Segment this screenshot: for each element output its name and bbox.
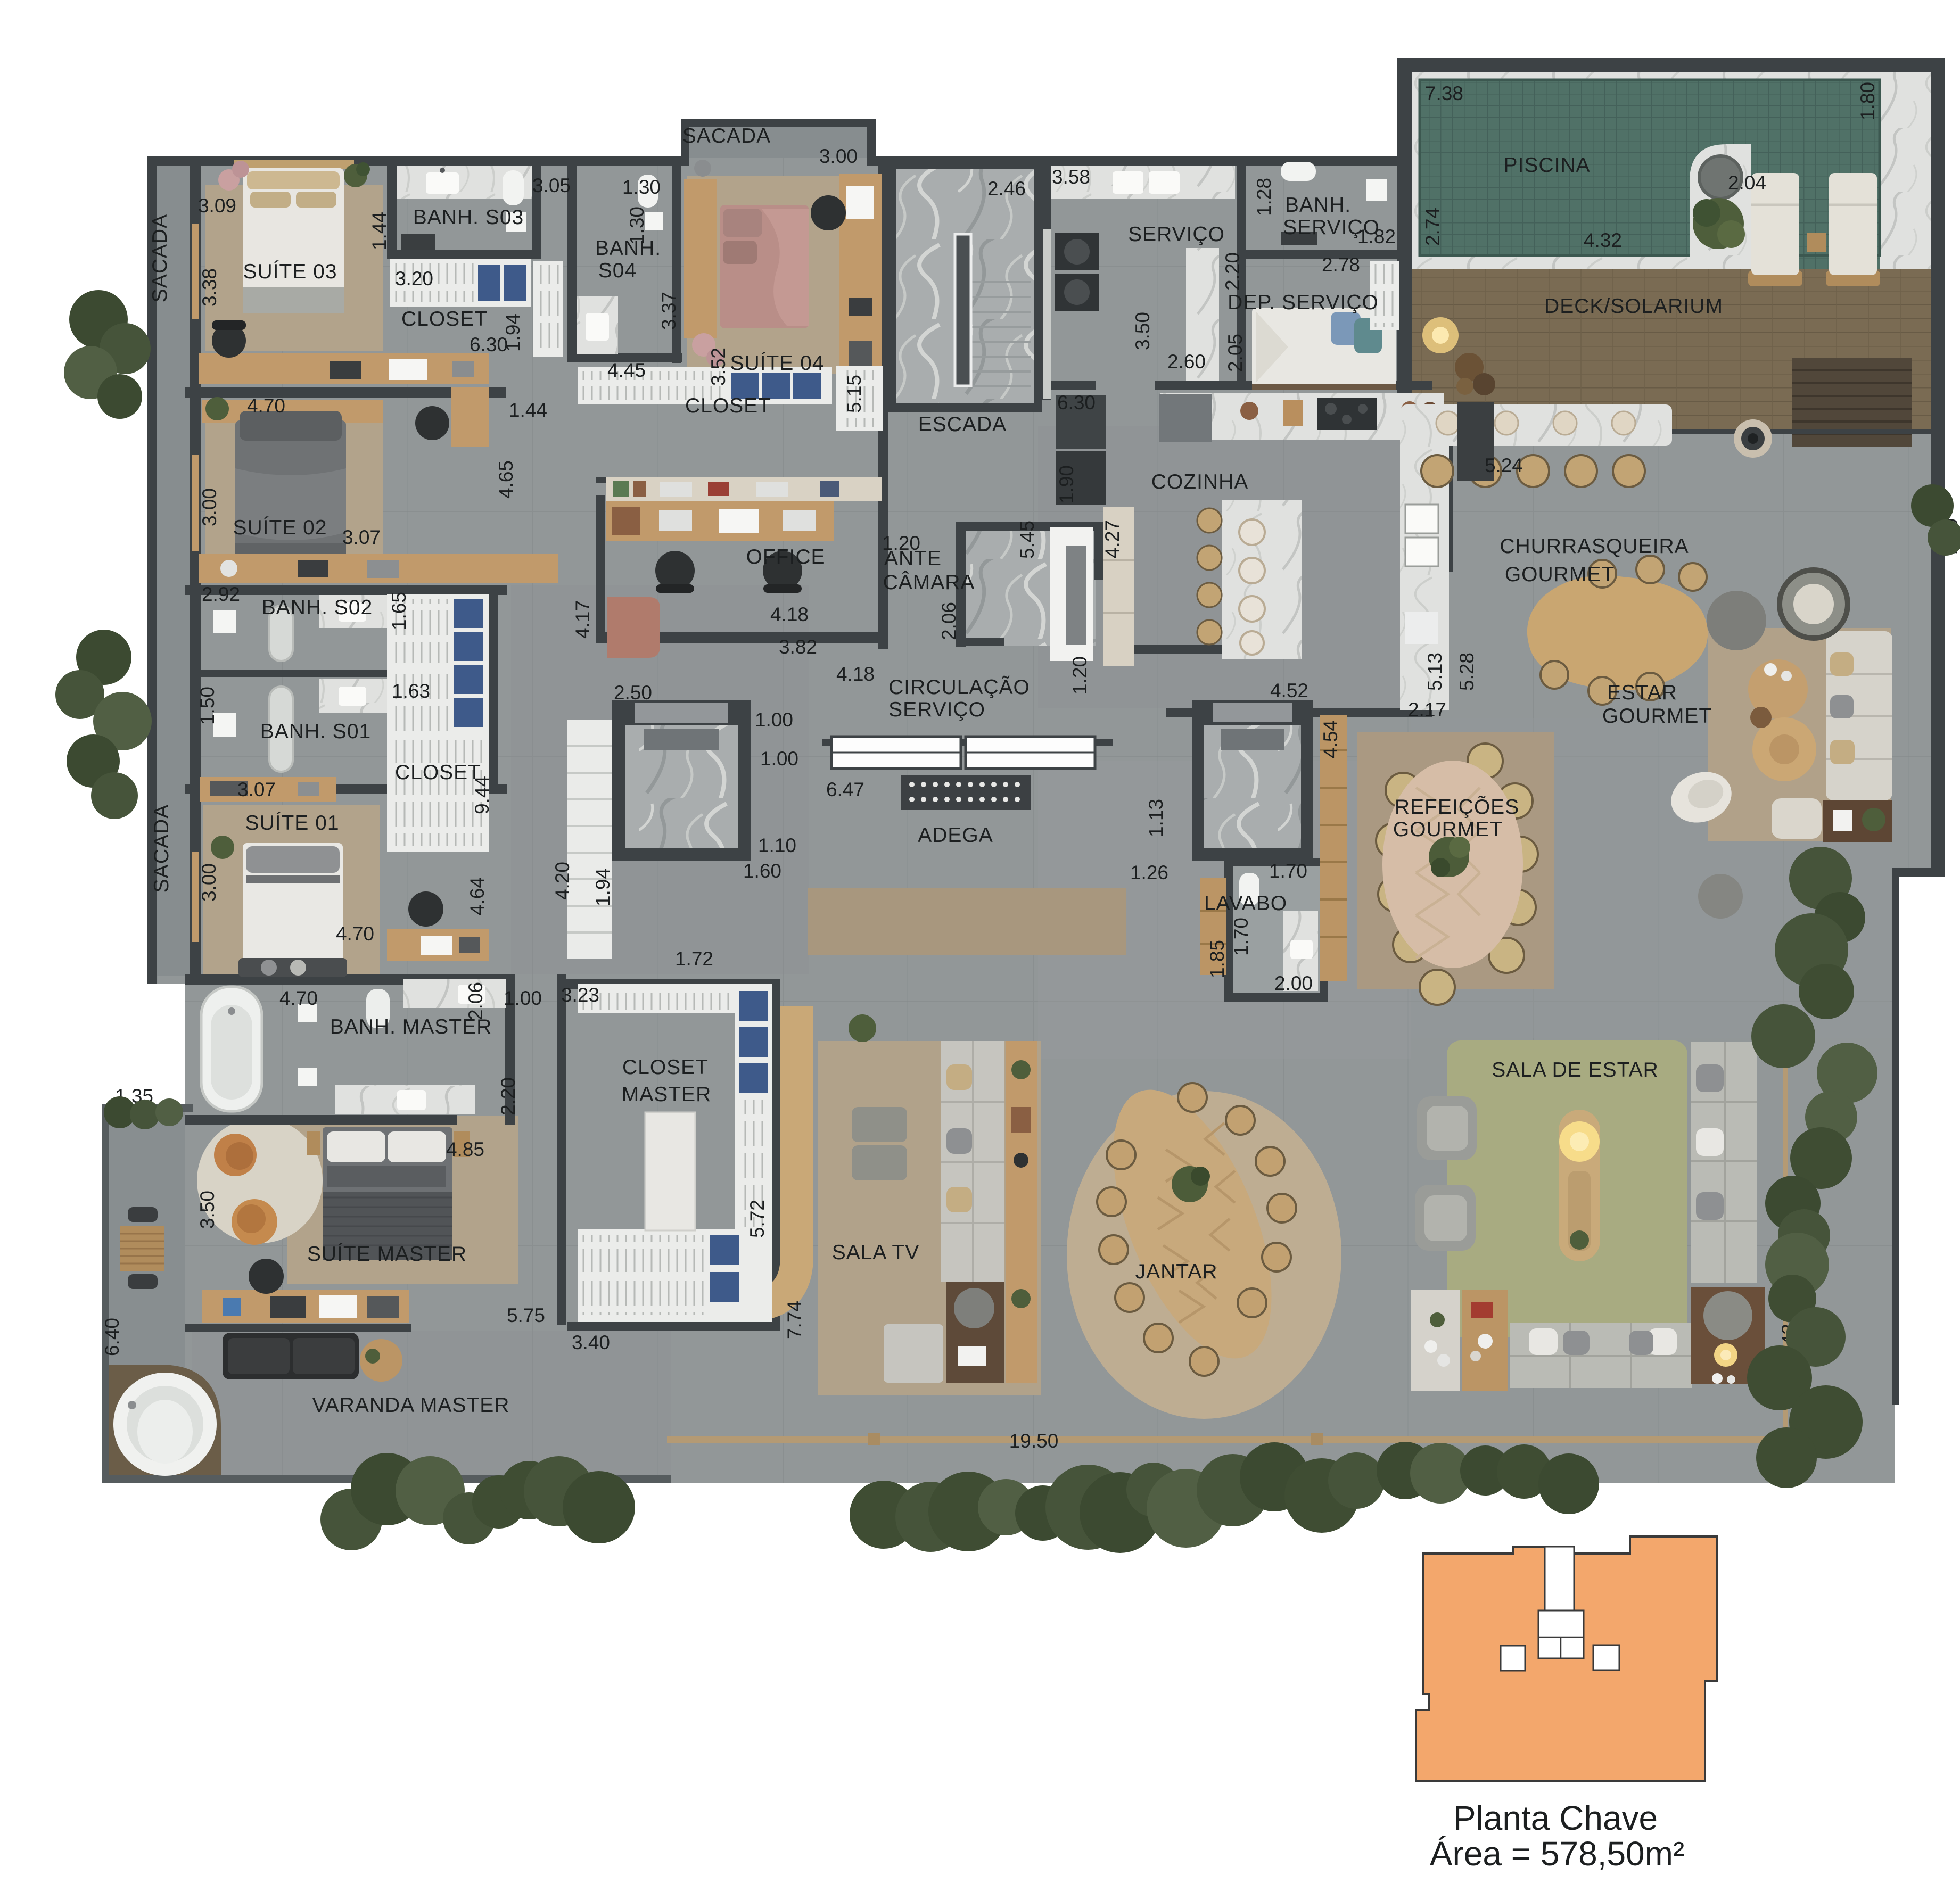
svg-text:BANH.: BANH. bbox=[1285, 194, 1351, 217]
svg-text:4.64: 4.64 bbox=[466, 877, 488, 915]
svg-text:JANTAR: JANTAR bbox=[1135, 1260, 1218, 1283]
svg-text:1.72: 1.72 bbox=[675, 948, 713, 970]
svg-text:COZINHA: COZINHA bbox=[1151, 470, 1249, 493]
svg-text:4.65: 4.65 bbox=[495, 460, 517, 499]
svg-text:4.45: 4.45 bbox=[607, 359, 646, 381]
svg-text:1.44: 1.44 bbox=[368, 212, 390, 250]
svg-text:4.32: 4.32 bbox=[1584, 229, 1622, 251]
svg-text:2.20: 2.20 bbox=[1222, 252, 1243, 291]
svg-text:2.06: 2.06 bbox=[938, 602, 960, 640]
svg-text:3.07: 3.07 bbox=[342, 526, 381, 548]
svg-text:1.70: 1.70 bbox=[1269, 860, 1307, 882]
svg-text:5.75: 5.75 bbox=[507, 1304, 545, 1326]
svg-text:GOURMET: GOURMET bbox=[1505, 563, 1615, 586]
svg-text:2.06: 2.06 bbox=[465, 982, 487, 1020]
svg-text:BANH. S01: BANH. S01 bbox=[260, 720, 371, 743]
svg-text:4.70: 4.70 bbox=[279, 987, 318, 1009]
svg-text:3.82: 3.82 bbox=[779, 636, 817, 658]
svg-text:LAVABO: LAVABO bbox=[1204, 892, 1287, 915]
svg-text:SUÍTE MASTER: SUÍTE MASTER bbox=[307, 1243, 467, 1266]
svg-text:1.65: 1.65 bbox=[388, 592, 410, 630]
svg-text:DEP. SERVIÇO: DEP. SERVIÇO bbox=[1228, 291, 1379, 314]
svg-text:2.05: 2.05 bbox=[1224, 334, 1246, 372]
svg-text:1.94: 1.94 bbox=[592, 868, 614, 906]
svg-text:3.38: 3.38 bbox=[199, 268, 220, 307]
svg-text:2.60: 2.60 bbox=[1167, 351, 1206, 373]
svg-text:4.52: 4.52 bbox=[1270, 680, 1308, 701]
svg-text:5.13: 5.13 bbox=[1424, 652, 1446, 691]
svg-text:1.30: 1.30 bbox=[626, 206, 648, 245]
svg-text:2.20: 2.20 bbox=[497, 1077, 519, 1116]
svg-text:SUÍTE 01: SUÍTE 01 bbox=[245, 812, 339, 835]
svg-text:SUÍTE 04: SUÍTE 04 bbox=[730, 352, 824, 375]
svg-text:CIRCULAÇÃO: CIRCULAÇÃO bbox=[888, 676, 1030, 699]
svg-text:CLOSET: CLOSET bbox=[395, 761, 481, 784]
svg-text:Área = 578,50m²: Área = 578,50m² bbox=[1430, 1835, 1685, 1873]
svg-text:4.18: 4.18 bbox=[836, 663, 875, 685]
svg-text:1.26: 1.26 bbox=[1130, 862, 1168, 883]
svg-text:VARANDA MASTER: VARANDA MASTER bbox=[312, 1394, 510, 1417]
svg-text:1.28: 1.28 bbox=[1253, 178, 1275, 216]
svg-text:1.60: 1.60 bbox=[743, 860, 781, 882]
svg-text:1.30: 1.30 bbox=[622, 176, 661, 198]
svg-text:4.20: 4.20 bbox=[551, 862, 573, 900]
svg-text:3.23: 3.23 bbox=[561, 984, 599, 1006]
svg-text:ESTAR: ESTAR bbox=[1607, 681, 1677, 704]
svg-text:1.00: 1.00 bbox=[760, 748, 798, 770]
svg-text:SALA DE ESTAR: SALA DE ESTAR bbox=[1492, 1059, 1659, 1081]
svg-text:3.00: 3.00 bbox=[199, 488, 220, 526]
svg-text:3.20: 3.20 bbox=[395, 268, 433, 290]
svg-text:1.20: 1.20 bbox=[882, 532, 920, 554]
svg-text:6.30: 6.30 bbox=[1057, 392, 1096, 414]
svg-text:3.05: 3.05 bbox=[532, 175, 571, 196]
svg-text:3.37: 3.37 bbox=[658, 292, 680, 330]
svg-text:Planta Chave: Planta Chave bbox=[1453, 1799, 1658, 1837]
svg-text:DECK/SOLARIUM: DECK/SOLARIUM bbox=[1544, 295, 1723, 318]
svg-text:ADEGA: ADEGA bbox=[918, 824, 993, 847]
svg-text:SERVIÇO: SERVIÇO bbox=[1128, 223, 1225, 246]
svg-text:4.70: 4.70 bbox=[336, 923, 374, 945]
svg-text:1.70: 1.70 bbox=[1230, 918, 1252, 956]
svg-text:3.00: 3.00 bbox=[198, 863, 220, 902]
svg-text:3.00: 3.00 bbox=[819, 145, 858, 167]
svg-text:1.20: 1.20 bbox=[1069, 656, 1091, 695]
svg-text:5.28: 5.28 bbox=[1456, 652, 1478, 691]
svg-text:4.85: 4.85 bbox=[446, 1138, 484, 1160]
svg-text:4.18: 4.18 bbox=[770, 604, 809, 625]
svg-text:1.85: 1.85 bbox=[1206, 940, 1228, 978]
svg-text:2.74: 2.74 bbox=[1422, 208, 1444, 246]
svg-text:6.47: 6.47 bbox=[826, 779, 864, 800]
svg-text:SACADA: SACADA bbox=[682, 125, 771, 147]
svg-text:GOURMET: GOURMET bbox=[1393, 818, 1503, 841]
svg-text:6.40: 6.40 bbox=[101, 1318, 123, 1356]
svg-text:SACADA: SACADA bbox=[149, 214, 171, 302]
svg-text:1.90: 1.90 bbox=[1056, 465, 1077, 503]
svg-text:7.74: 7.74 bbox=[784, 1301, 805, 1339]
svg-text:CLOSET: CLOSET bbox=[622, 1056, 709, 1079]
svg-text:4.70: 4.70 bbox=[247, 395, 285, 417]
svg-text:3.40: 3.40 bbox=[572, 1332, 610, 1353]
svg-text:1.13: 1.13 bbox=[1145, 799, 1167, 837]
svg-text:2.92: 2.92 bbox=[202, 583, 240, 605]
svg-text:19.50: 19.50 bbox=[1009, 1430, 1059, 1452]
svg-text:PISCINA: PISCINA bbox=[1503, 154, 1590, 177]
svg-text:MASTER: MASTER bbox=[622, 1083, 712, 1106]
svg-text:1.00: 1.00 bbox=[755, 709, 793, 731]
svg-text:SALA TV: SALA TV bbox=[832, 1241, 920, 1264]
svg-text:GOURMET: GOURMET bbox=[1602, 705, 1712, 728]
svg-text:4.54: 4.54 bbox=[1320, 720, 1341, 758]
svg-text:9.44: 9.44 bbox=[471, 776, 493, 814]
svg-text:7.38: 7.38 bbox=[1425, 82, 1463, 104]
svg-text:SUÍTE 02: SUÍTE 02 bbox=[233, 516, 327, 539]
svg-text:3.50: 3.50 bbox=[1132, 312, 1154, 350]
svg-text:CLOSET: CLOSET bbox=[685, 394, 771, 417]
svg-text:1.80: 1.80 bbox=[1857, 82, 1879, 120]
svg-text:3.50: 3.50 bbox=[196, 1191, 218, 1229]
svg-text:6.30: 6.30 bbox=[470, 334, 508, 356]
svg-text:1.10: 1.10 bbox=[758, 835, 796, 856]
svg-text:CLOSET: CLOSET bbox=[401, 308, 488, 331]
svg-text:4.27: 4.27 bbox=[1101, 520, 1123, 558]
svg-text:3.52: 3.52 bbox=[707, 348, 729, 386]
svg-text:2.50: 2.50 bbox=[614, 682, 652, 704]
svg-text:1.82: 1.82 bbox=[1357, 226, 1396, 247]
svg-text:BANH. S03: BANH. S03 bbox=[413, 206, 524, 229]
svg-text:1.00: 1.00 bbox=[504, 987, 542, 1009]
svg-text:1.44: 1.44 bbox=[509, 399, 547, 421]
svg-text:2.17: 2.17 bbox=[1408, 699, 1446, 721]
svg-text:3.58: 3.58 bbox=[1052, 166, 1090, 188]
svg-text:2.04: 2.04 bbox=[1728, 172, 1766, 194]
svg-text:3.09: 3.09 bbox=[198, 195, 236, 217]
svg-text:5.15: 5.15 bbox=[843, 375, 865, 413]
svg-text:OFFICE: OFFICE bbox=[746, 546, 826, 568]
svg-text:SACADA: SACADA bbox=[150, 804, 173, 893]
svg-text:4.17: 4.17 bbox=[572, 600, 594, 639]
svg-text:CHURRASQUEIRA: CHURRASQUEIRA bbox=[1500, 535, 1689, 558]
svg-text:CÂMARA: CÂMARA bbox=[883, 571, 975, 594]
svg-text:1.50: 1.50 bbox=[196, 687, 218, 725]
svg-text:2.00: 2.00 bbox=[1274, 972, 1313, 994]
svg-text:S04: S04 bbox=[598, 259, 637, 282]
svg-text:SERVIÇO: SERVIÇO bbox=[888, 698, 985, 721]
svg-text:REFEIÇÕES: REFEIÇÕES bbox=[1395, 795, 1519, 819]
svg-text:5.24: 5.24 bbox=[1485, 455, 1523, 476]
svg-text:SUÍTE 03: SUÍTE 03 bbox=[243, 260, 337, 283]
svg-text:2.78: 2.78 bbox=[1322, 254, 1360, 276]
svg-text:BANH. S02: BANH. S02 bbox=[262, 596, 373, 619]
svg-text:1.63: 1.63 bbox=[392, 680, 430, 702]
svg-text:ESCADA: ESCADA bbox=[918, 413, 1007, 436]
svg-text:5.72: 5.72 bbox=[746, 1200, 768, 1238]
svg-text:2.46: 2.46 bbox=[987, 178, 1026, 200]
svg-text:3.07: 3.07 bbox=[237, 779, 276, 800]
svg-text:5.45: 5.45 bbox=[1016, 521, 1038, 559]
